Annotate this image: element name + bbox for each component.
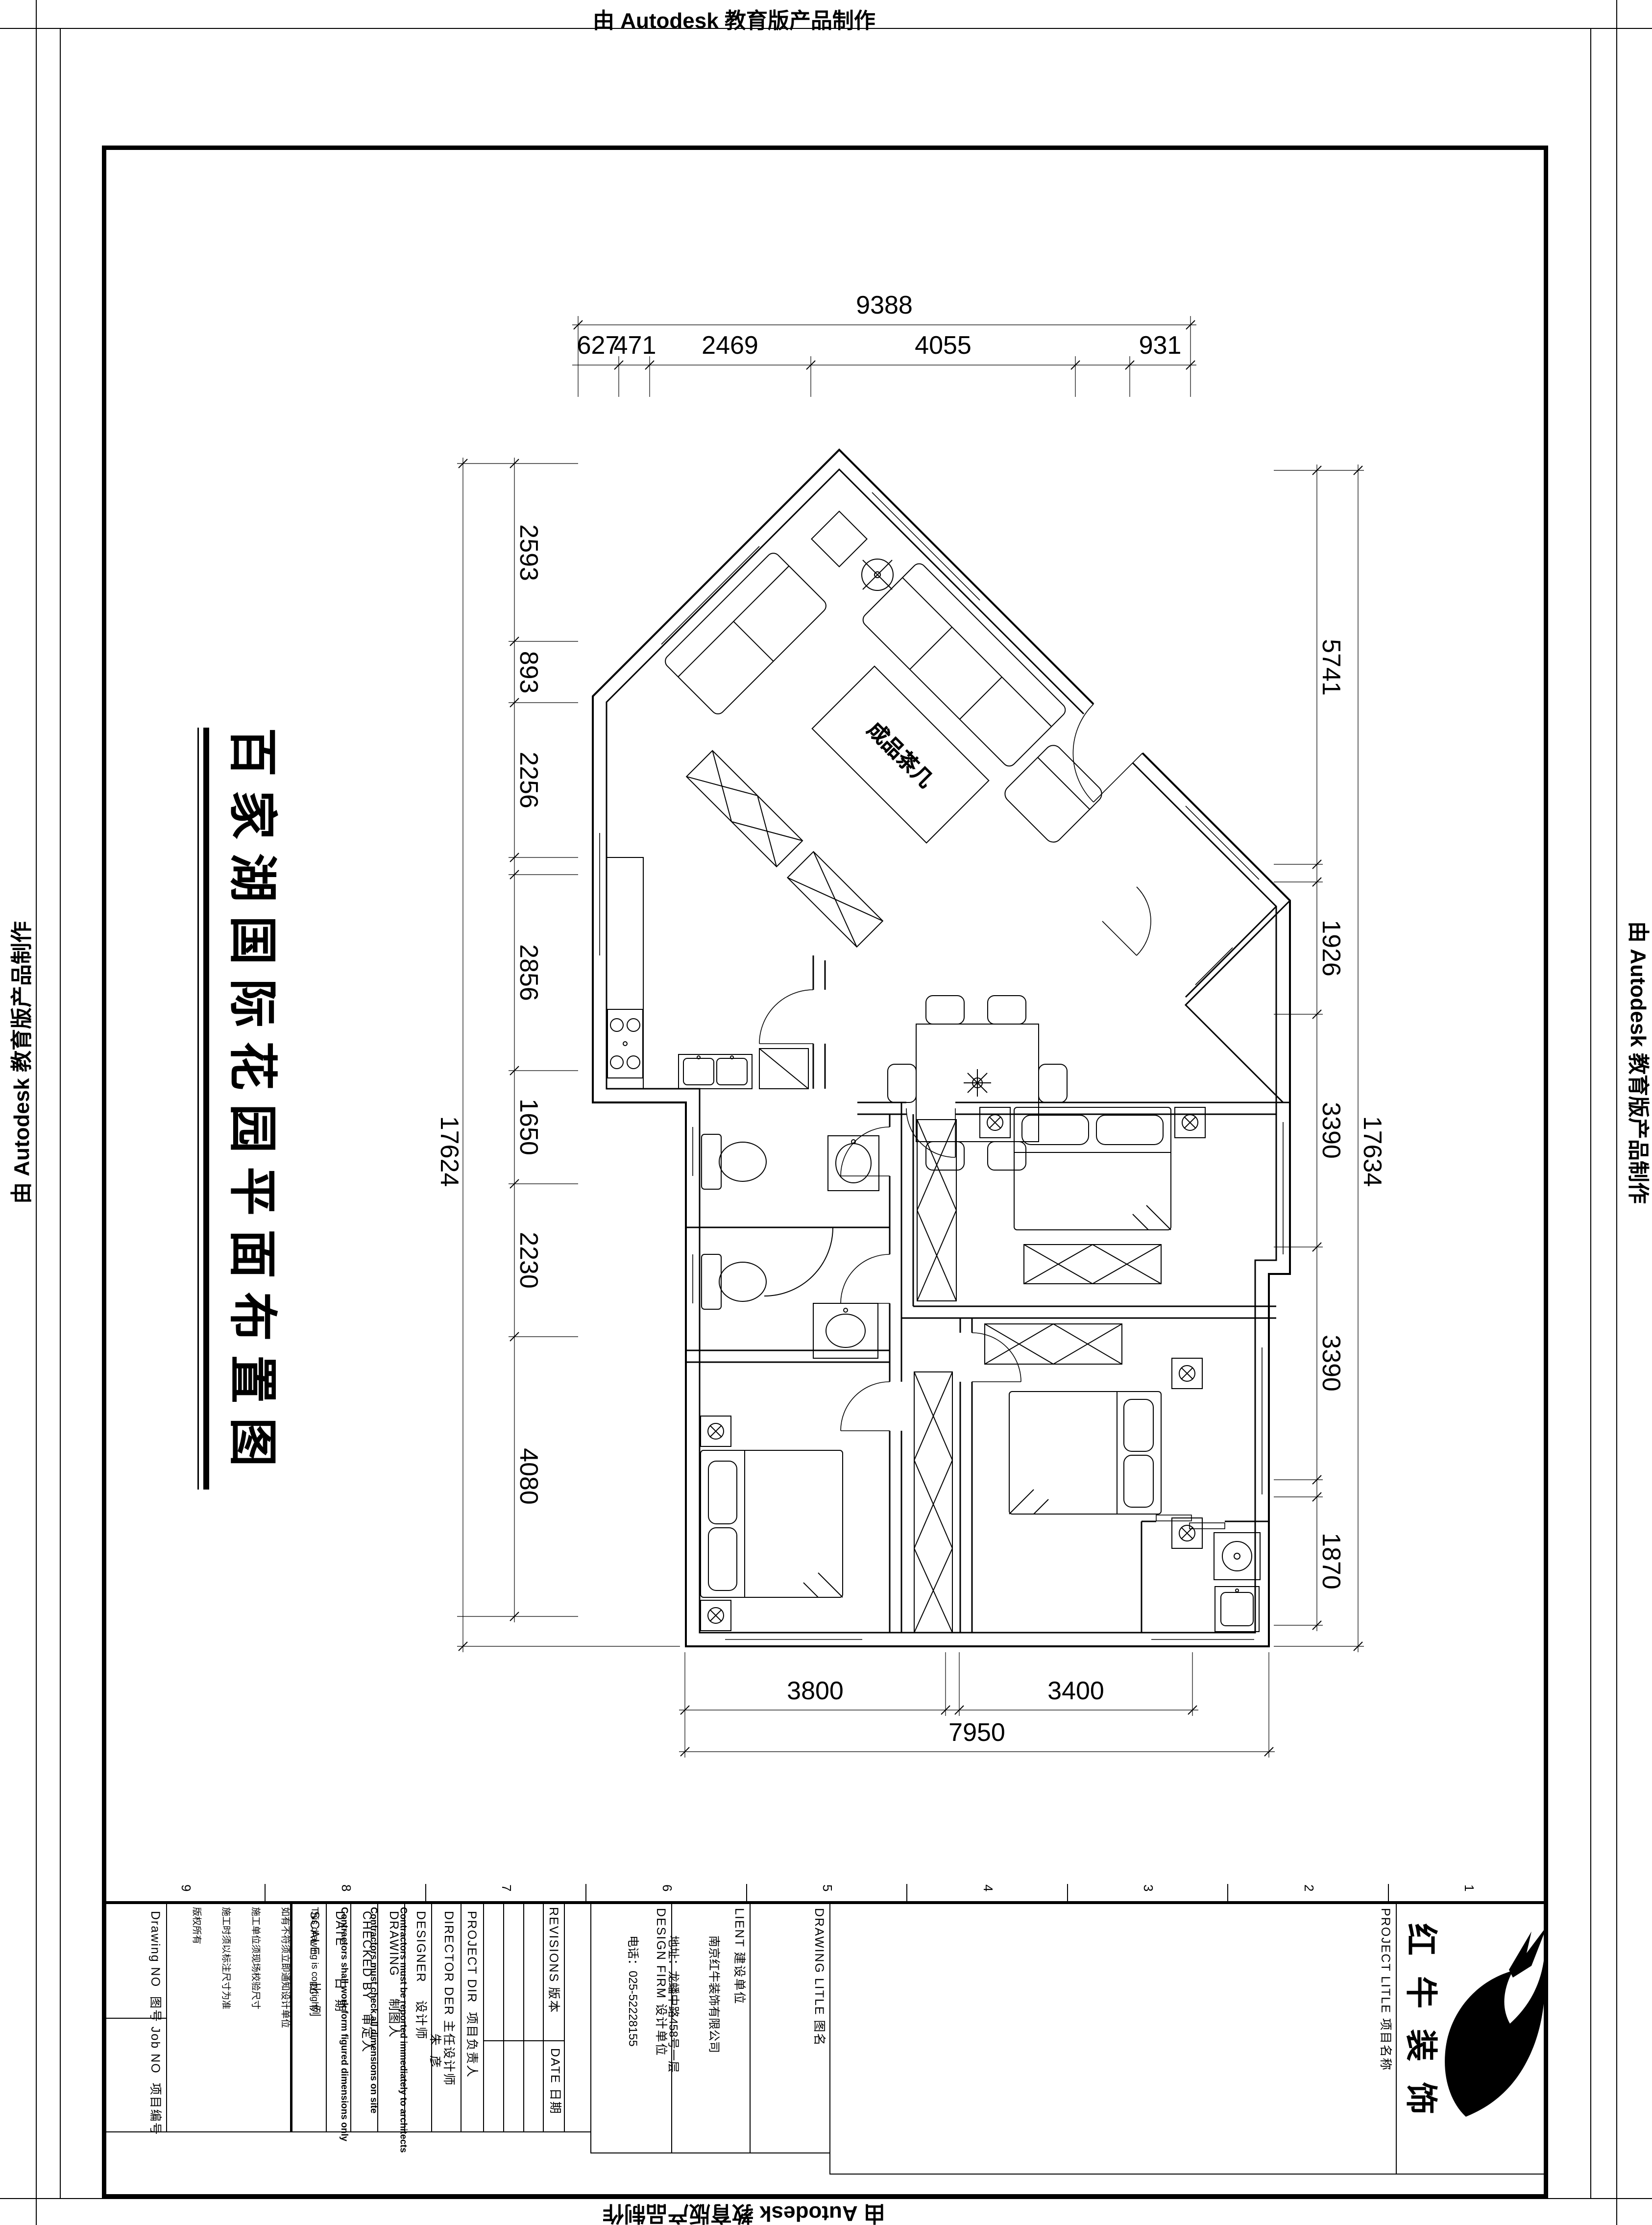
dim: 2469 [702, 331, 758, 360]
dim: 5741 [1317, 639, 1345, 696]
side-table [811, 511, 867, 566]
lamp-icon [708, 1608, 724, 1623]
dim: 893 [514, 651, 543, 694]
dimension-labels: 9388 627 471 2469 4055 931 17624 2593 89… [435, 291, 1386, 1747]
lamp-icon [708, 1423, 724, 1439]
dim-right-overall: 17634 [1358, 1116, 1386, 1187]
drawing-no-label: Drawing NO 图号 [147, 1911, 165, 2023]
wardrobe [985, 1324, 1122, 1364]
project-dir-label: PROJECT DIR 项目负责人 [464, 1911, 482, 2078]
dim-left-overall: 17624 [435, 1116, 463, 1187]
dim: 2856 [514, 944, 543, 1001]
job-no-label: Job NO 项目编号 [147, 2027, 165, 2136]
dim: 1650 [514, 1099, 543, 1155]
project-title-label: PROJECT LITLE 项目名称 [1378, 1908, 1395, 2071]
doors [759, 704, 1225, 1529]
bedroom-1 [701, 1416, 843, 1631]
date-label: DATE 日 期 [332, 1911, 350, 2012]
coffee-table-label: 成品茶几 [863, 717, 938, 792]
dim: 3390 [1317, 1102, 1345, 1159]
grid-number: 8 [339, 1884, 354, 1891]
dim-bottom-overall: 7950 [948, 1718, 1005, 1747]
grid-number: 7 [499, 1884, 514, 1891]
grid-number: 4 [980, 1884, 996, 1891]
bed [701, 1450, 843, 1597]
fridge-icon [759, 1049, 808, 1089]
note-line: 施工单位须现场校验尺寸 [249, 1907, 261, 2130]
client-label: LIENT 建设单位 [731, 1908, 749, 2005]
lamp-icon [987, 1115, 1003, 1130]
dim: 2593 [514, 524, 543, 581]
scale-label: SCALE 比 例 [307, 1911, 324, 2018]
bed [1009, 1392, 1161, 1514]
dim: 1870 [1317, 1533, 1345, 1589]
toilet-icon [702, 1134, 766, 1189]
bathroom-sink-icon [828, 1136, 879, 1191]
company-phone: 电话：025-52228155 [626, 1935, 639, 2073]
centerpiece-icon [964, 1069, 991, 1097]
dim: 1926 [1317, 920, 1345, 977]
dim: 931 [1139, 331, 1182, 360]
grid-number: 5 [820, 1884, 835, 1891]
windows [600, 492, 1283, 1639]
dim: 471 [614, 331, 656, 360]
checked-by-label: CHECKED BY 审定人 [359, 1911, 377, 2053]
company-address: 地址：龙蟠中路458号一层 [666, 1935, 680, 2073]
kitchen-counter [607, 857, 643, 1089]
dim: 2230 [514, 1232, 543, 1289]
stove-icon [607, 1009, 643, 1078]
grid-number: 1 [1461, 1884, 1477, 1891]
dim: 3390 [1317, 1335, 1345, 1392]
outer-walls [593, 450, 1290, 1646]
armchair [1001, 742, 1105, 846]
wardrobe [917, 1120, 956, 1301]
lamp-icon [1179, 1525, 1195, 1541]
kitchen [607, 857, 808, 1089]
dim: 4080 [514, 1448, 543, 1505]
sheet: 由 Autodesk 教育版产品制作 由 Autodesk 教育版产品制作 由 … [0, 0, 1652, 2225]
redbull-logo-icon [1435, 1906, 1548, 2136]
dim: 4055 [915, 331, 972, 360]
ceiling-light-icon [862, 559, 893, 590]
grid-number: 9 [178, 1884, 194, 1891]
tv-cabinet [1024, 1245, 1161, 1284]
master-bedroom [917, 1107, 1205, 1301]
revisions-date-label: DATE 日期 [547, 2048, 565, 2115]
dim: 3400 [1047, 1677, 1104, 1705]
washing-machine-icon [1214, 1533, 1260, 1580]
company-name: 南京红牛装饰有限公司 [707, 1935, 721, 2073]
coffee-table: 成品茶几 [812, 666, 989, 843]
grid-number: 3 [1141, 1884, 1156, 1891]
toilet-icon [702, 1254, 766, 1309]
sofa-loveseat [662, 550, 828, 716]
shower-arc [764, 1227, 833, 1296]
grid-number: 2 [1301, 1884, 1316, 1891]
kitchen-sink-icon [679, 1054, 752, 1089]
design-firm-value: 南京红牛装饰有限公司 地址：龙蟠中路458号一层 电话：025-52228155 [599, 1935, 748, 2073]
bed [1014, 1107, 1171, 1230]
grid-number: 6 [659, 1884, 675, 1891]
dining-set [888, 996, 1067, 1170]
drawing-title-label: DRAWING LITLE 图名 [811, 1908, 829, 2047]
dim: 2256 [514, 752, 543, 808]
lamp-icon [1182, 1115, 1198, 1130]
revisions-label: REVISIONS 版本 [546, 1907, 563, 2013]
note-line: 如有不符须立即通知设计单位 [279, 1907, 291, 2130]
note-line: 施工时须以标注尺寸为准 [219, 1907, 231, 2130]
dim: 3800 [787, 1677, 844, 1705]
drawing-label: DRAWING 制图人 [386, 1911, 404, 2038]
designer-label: DESIGNER 设计师 [413, 1911, 431, 2040]
corridor-wardrobe [914, 1372, 952, 1633]
note-line: 版权所有 [190, 1907, 202, 2130]
director-value: 朱 彦 [427, 2033, 445, 2069]
bathrooms [702, 1134, 879, 1358]
utility-sink-icon [1215, 1587, 1259, 1632]
dim: 627 [577, 331, 620, 360]
lamp-icon [1179, 1366, 1195, 1381]
balcony [1214, 1533, 1260, 1632]
dim-top-overall: 9388 [856, 291, 913, 319]
